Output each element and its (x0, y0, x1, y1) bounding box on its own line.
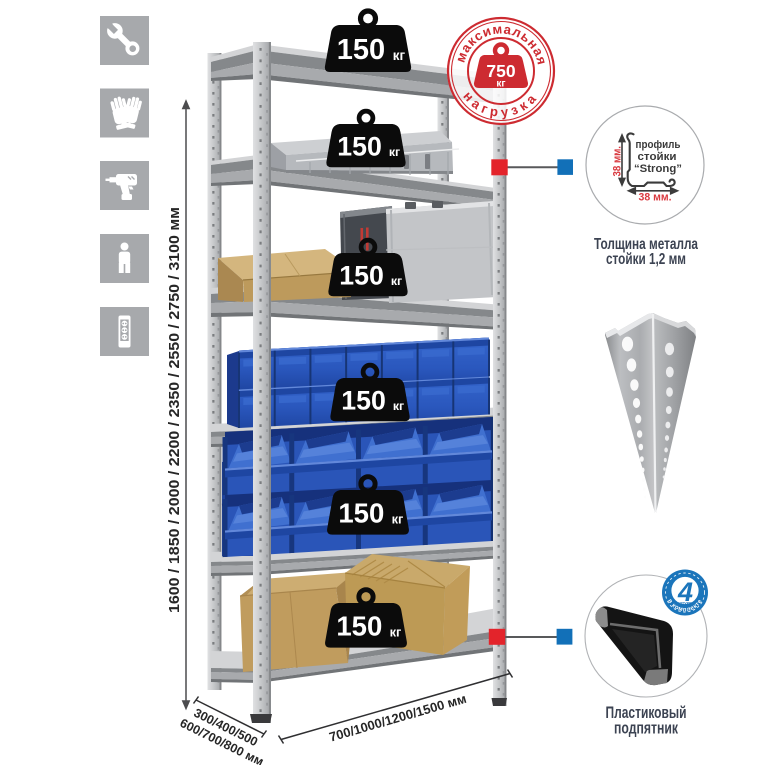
svg-text:кг: кг (393, 399, 404, 413)
svg-text:кг: кг (389, 145, 400, 159)
svg-text:150: 150 (337, 131, 382, 161)
svg-text:38 мм.: 38 мм. (639, 192, 672, 204)
svg-text:кг: кг (393, 48, 406, 63)
svg-text:кг: кг (496, 79, 505, 90)
svg-text:“Strong”: “Strong” (634, 163, 682, 175)
svg-text:150: 150 (338, 497, 384, 528)
svg-text:штуки: штуки (678, 601, 692, 606)
svg-text:профиль: профиль (636, 139, 681, 151)
svg-text:150: 150 (336, 610, 382, 641)
svg-text:150: 150 (341, 385, 386, 415)
svg-text:38 мм.: 38 мм. (612, 146, 624, 177)
svg-text:кг: кг (392, 511, 404, 526)
svg-text:700/1000/1200/1500 мм: 700/1000/1200/1500 мм (327, 691, 468, 745)
svg-text:кг: кг (390, 624, 402, 639)
svg-text:стойки: стойки (638, 151, 677, 163)
svg-text:150: 150 (337, 34, 385, 66)
svg-text:150: 150 (339, 260, 384, 290)
svg-text:кг: кг (391, 274, 402, 288)
svg-text:1600 / 1850 / 2000 / 2200 / 23: 1600 / 1850 / 2000 / 2200 / 2350 / 2550 … (167, 207, 183, 613)
svg-text:подпятник: подпятник (614, 720, 679, 738)
svg-text:стойки 1,2 мм: стойки 1,2 мм (606, 251, 686, 268)
